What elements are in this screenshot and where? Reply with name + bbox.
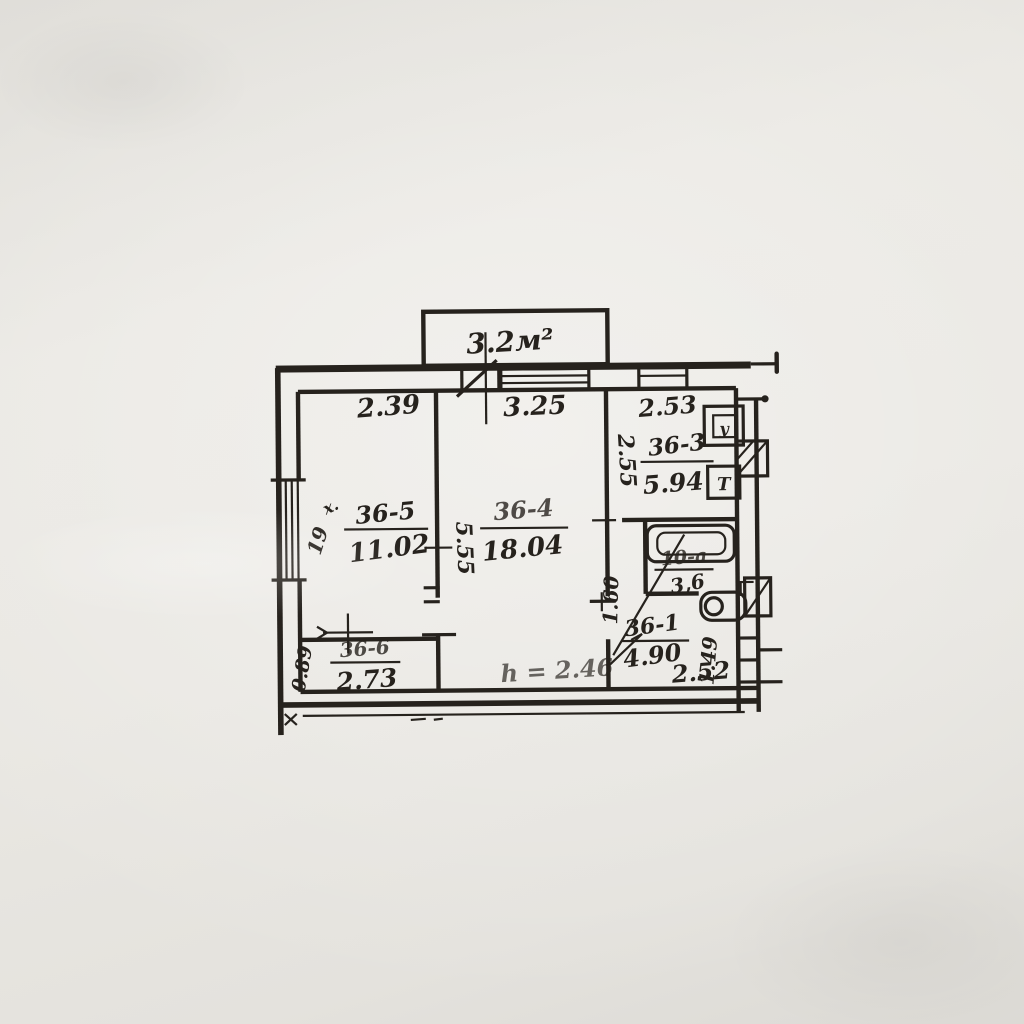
right-wall-outer [756, 399, 759, 712]
window-pane-line [501, 375, 589, 376]
window-icon [501, 368, 589, 390]
room-36-5-area: 11.02 [347, 529, 432, 569]
bathroom-number: 10-а [660, 545, 708, 571]
toilet-bowl [705, 598, 722, 615]
dim-bathroom-depth: 1.60 [598, 575, 623, 624]
kitchen-wall [622, 519, 737, 520]
closet-number: 36-6 [339, 634, 391, 662]
room-36-4: 3.25 36-4 18.04 5.55 h = 2.46 [449, 390, 614, 688]
left-wall-inner [298, 392, 299, 480]
window-pane-line [292, 480, 293, 580]
dim-room-36-5-width: 2.39 [355, 390, 421, 425]
closet-area: 2.73 [334, 663, 398, 697]
fraction-line [480, 528, 568, 529]
room-36-5: 2.39 36-5 11.02 х. 19 [301, 390, 432, 570]
bathroom-area: 3,6 [668, 569, 707, 599]
room-36-4-area: 18.04 [481, 530, 565, 568]
kitchen-area: 5.94 [642, 466, 705, 500]
room-36-5-side-mark: 19 [302, 524, 333, 558]
right-wall-details [734, 388, 783, 712]
bathroom-wall [645, 520, 646, 594]
fraction-line [641, 461, 714, 462]
bottom-wall [279, 701, 759, 705]
dimension-dot [761, 395, 768, 402]
closet-36-6: 36-6 2.73 0.89 [287, 634, 400, 697]
dim-kitchen-width: 2.53 [636, 389, 698, 423]
balcony-door-leaf [485, 332, 486, 424]
dim-kitchen-depth: 2.55 [612, 432, 641, 488]
window-pane-line [501, 382, 589, 383]
vent-shaft-symbol: у [718, 419, 730, 438]
kitchen-36-3: 2.53 36-3 5.94 2.55 у Т [591, 389, 744, 520]
window-icon [286, 480, 287, 580]
scanned-floor-plan-page: 3.2м² [0, 0, 1024, 1024]
dim-hall-depth: 1.49 [694, 635, 722, 686]
scan-mark [434, 719, 443, 720]
dim-room-36-4-depth: 5.55 [450, 521, 478, 576]
bottom-base-line [303, 712, 745, 716]
dim-room-36-4-width: 3.25 [503, 390, 568, 423]
arrow-mark [317, 627, 327, 633]
ceiling-height-note: h = 2.46 [500, 652, 615, 688]
room-36-5-corner-mark: х. [319, 495, 342, 519]
window-icon [639, 368, 687, 389]
balcony-area-label: 3.2м² [465, 322, 554, 360]
fraction-line [344, 529, 428, 530]
scan-mark [411, 719, 426, 720]
room-36-5-number: 36-5 [354, 495, 417, 530]
partition-wall [436, 391, 438, 598]
left-wall [278, 368, 281, 735]
stove-box-symbol: Т [717, 474, 732, 495]
window-pane-line [298, 480, 299, 580]
partition-wall [606, 389, 608, 596]
kitchen-number: 36-3 [647, 428, 707, 461]
room-36-4-number: 36-4 [492, 493, 554, 527]
floor-plan-drawing: 3.2м² [0, 0, 1024, 1024]
dim-closet-depth: 0.89 [288, 644, 317, 693]
